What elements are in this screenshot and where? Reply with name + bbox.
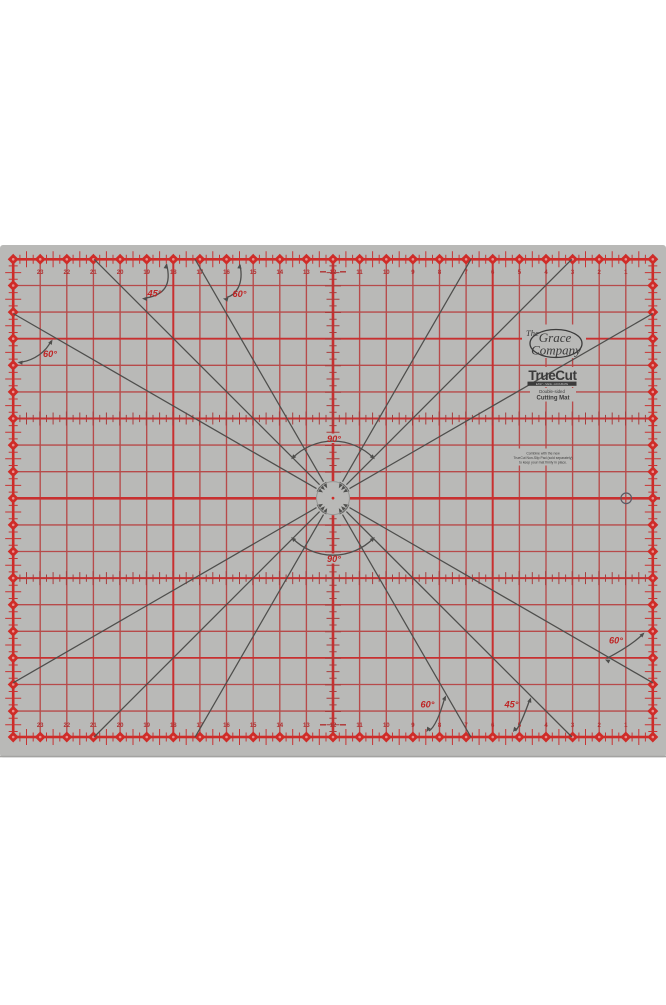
svg-text:23: 23 [37, 723, 44, 729]
svg-text:19: 19 [143, 270, 150, 276]
svg-text:Combine with the new: Combine with the new [526, 452, 560, 456]
svg-text:23: 23 [37, 270, 44, 276]
svg-text:TrueCut: TrueCut [528, 368, 577, 383]
svg-text:20: 20 [117, 270, 124, 276]
svg-text:12: 12 [330, 723, 337, 729]
svg-text:22: 22 [63, 723, 70, 729]
svg-text:10: 10 [383, 723, 390, 729]
svg-text:16: 16 [223, 723, 230, 729]
svg-text:13: 13 [303, 723, 310, 729]
svg-text:16: 16 [223, 270, 230, 276]
svg-text:45°: 45° [147, 289, 162, 299]
svg-text:60°: 60° [43, 349, 57, 359]
svg-text:The: The [526, 328, 539, 338]
svg-text:to keep your mat firmly in pla: to keep your mat firmly in place. [519, 460, 567, 464]
svg-text:10: 10 [383, 270, 390, 276]
svg-text:60°: 60° [233, 289, 247, 299]
svg-text:60°: 60° [609, 636, 623, 646]
svg-text:90°: 90° [327, 434, 341, 444]
svg-text:Double-sided: Double-sided [539, 389, 565, 394]
svg-text:14: 14 [276, 270, 283, 276]
svg-text:21: 21 [90, 270, 97, 276]
svg-text:Company: Company [531, 343, 581, 358]
svg-text:11: 11 [356, 270, 363, 276]
svg-text:22: 22 [63, 270, 70, 276]
svg-text:14: 14 [276, 723, 283, 729]
svg-text:20: 20 [117, 723, 124, 729]
svg-text:11: 11 [356, 723, 363, 729]
svg-text:45°: 45° [504, 700, 519, 710]
svg-text:TrueCut Non-Slip Pad (sold sep: TrueCut Non-Slip Pad (sold separately) [513, 456, 572, 460]
svg-text:Cutting Mat: Cutting Mat [537, 396, 570, 402]
svg-text:60°: 60° [421, 700, 435, 710]
svg-text:19: 19 [143, 723, 150, 729]
svg-text:12: 12 [330, 270, 337, 276]
svg-text:90°: 90° [327, 554, 341, 564]
svg-text:13: 13 [303, 270, 310, 276]
svg-text:18: 18 [170, 723, 177, 729]
svg-text:EASY • SAFE • ACCURATE: EASY • SAFE • ACCURATE [536, 382, 569, 386]
svg-text:21: 21 [90, 723, 97, 729]
svg-text:18: 18 [170, 270, 177, 276]
svg-text:15: 15 [250, 723, 257, 729]
svg-text:15: 15 [250, 270, 257, 276]
